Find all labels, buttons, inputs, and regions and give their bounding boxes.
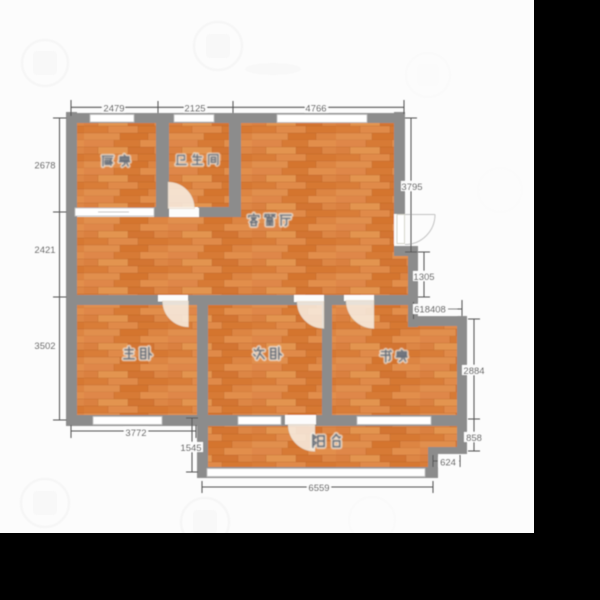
svg-text:2125: 2125 <box>184 104 205 115</box>
svg-text:4766: 4766 <box>305 104 326 115</box>
svg-text:3795: 3795 <box>401 182 422 193</box>
svg-text:624: 624 <box>440 458 456 469</box>
svg-text:618408: 618408 <box>414 305 446 316</box>
svg-text:2678: 2678 <box>34 161 55 172</box>
svg-text:858: 858 <box>466 433 482 444</box>
svg-text:2479: 2479 <box>103 104 124 115</box>
svg-text:2421: 2421 <box>34 245 55 256</box>
svg-text:1545: 1545 <box>180 443 201 454</box>
svg-text:6559: 6559 <box>308 483 329 494</box>
svg-text:2884: 2884 <box>463 366 484 377</box>
svg-text:3502: 3502 <box>34 341 55 352</box>
svg-text:3772: 3772 <box>125 428 146 439</box>
svg-text:1305: 1305 <box>413 272 434 283</box>
